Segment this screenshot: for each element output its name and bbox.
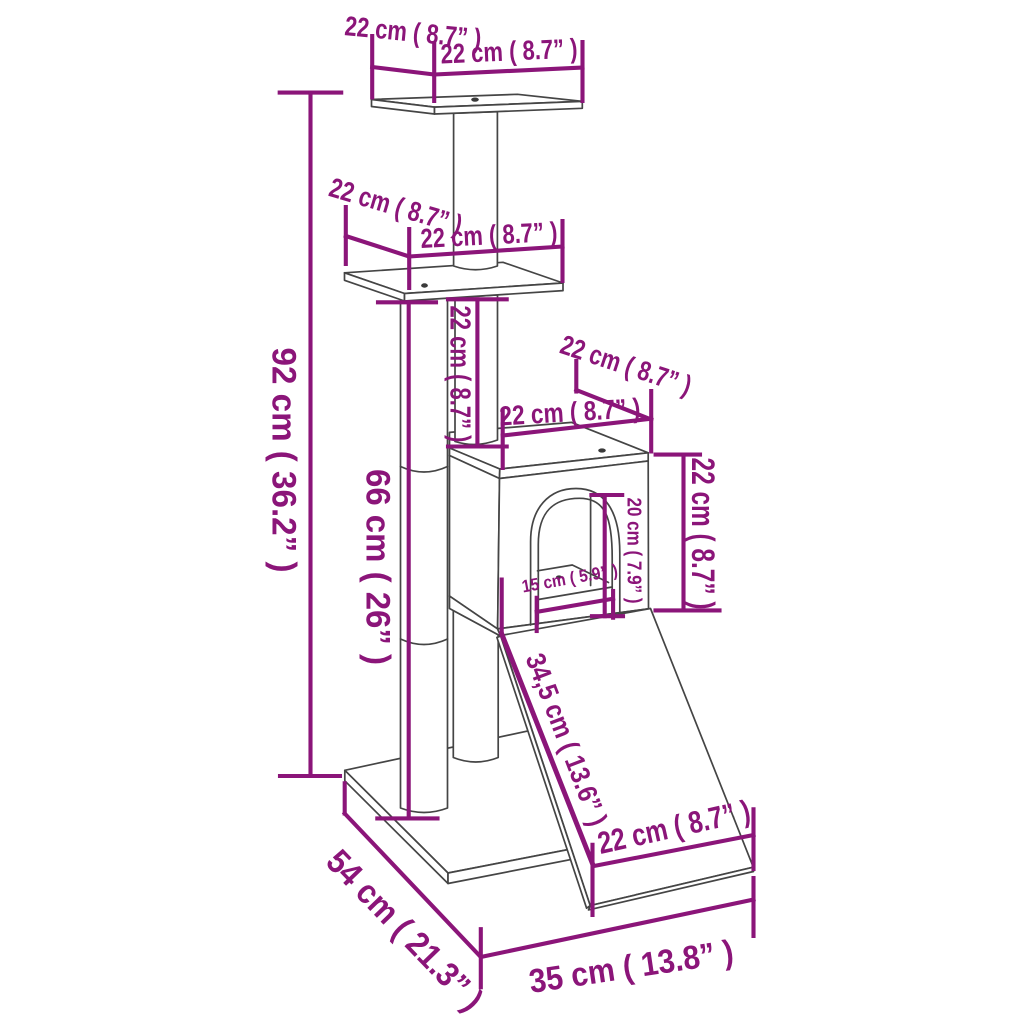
svg-text:22 cm ( 8.7” ): 22 cm ( 8.7” ): [685, 458, 721, 610]
svg-text:22 cm ( 8.7” ): 22 cm ( 8.7” ): [444, 306, 476, 443]
svg-text:20 cm ( 7.9” ): 20 cm ( 7.9” ): [623, 498, 646, 604]
svg-text:66 cm ( 26” ): 66 cm ( 26” ): [359, 469, 397, 665]
svg-text:22 cm ( 8.7” ): 22 cm ( 8.7” ): [440, 33, 578, 70]
svg-text:92 cm ( 36.2” ): 92 cm ( 36.2” ): [264, 348, 302, 573]
